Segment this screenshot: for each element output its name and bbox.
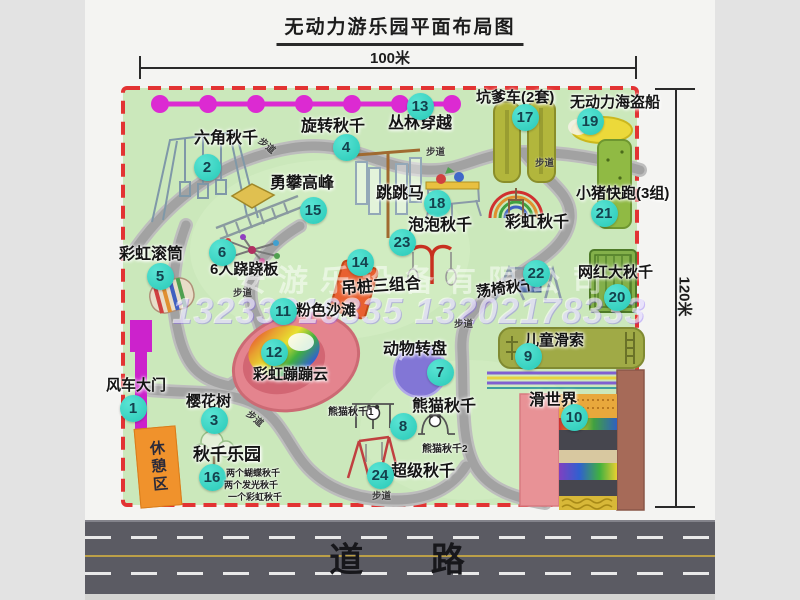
badge-rotate-swing: 4: [333, 134, 360, 161]
badge-hanging-post-combo: 14: [347, 249, 374, 276]
label-big-swing: 网红大秋千: [578, 265, 653, 281]
badge-hex-swing: 2: [194, 154, 221, 181]
road-label: 道 路: [85, 533, 715, 582]
walkway-label-5: 步道: [454, 316, 473, 330]
badge-rainbow-cloud: 12: [261, 339, 288, 366]
badge-swing-park: 16: [199, 464, 226, 491]
badge-bubble-swing: 23: [389, 229, 416, 256]
walkway-label-7: 步道: [372, 488, 391, 502]
badge-kids-zipline: 9: [515, 343, 542, 370]
sub-label-panda-swing-2: 熊猫秋千2: [422, 440, 468, 455]
label-rainbow-cloud: 彩虹蹦蹦云: [253, 367, 328, 383]
badge-windmill-gate: 1: [120, 395, 147, 422]
badge-pirate-ship: 19: [577, 108, 604, 135]
badge-seesaw-6p: 6: [209, 239, 236, 266]
label-pig-run: 小猪快跑(3组): [576, 186, 669, 202]
label-pink-beach: 粉色沙滩: [296, 303, 356, 319]
labels-layer: 风车大门1六角秋千2樱花树3旋转秋千4彩虹滚筒56人跷跷板6动物转盘7熊猫秋千8…: [0, 0, 800, 600]
sub-label-swing-park-note-3: 一个彩虹秋千: [228, 490, 282, 503]
sub-label-panda-swing-1: 熊猫秋千1: [328, 403, 374, 418]
label-hex-swing: 六角秋千: [194, 131, 258, 148]
badge-slide-world: 10: [561, 404, 588, 431]
label-bubble-swing: 泡泡秋千: [408, 218, 472, 235]
label-rainbow-swing: 彩虹秋千: [505, 215, 569, 232]
badge-panda-swing: 8: [390, 413, 417, 440]
badge-big-swing: 20: [604, 284, 631, 311]
label-super-swing: 超级秋千: [391, 464, 455, 481]
label-climb-peak: 勇攀高峰: [270, 176, 334, 193]
label-pirate-ship: 无动力海盗船: [570, 95, 660, 111]
label-hanging-post-combo: 吊桩三组合: [341, 276, 422, 298]
label-jump-horse: 跳跳马: [376, 186, 424, 203]
walkway-label-3: 步道: [535, 155, 554, 169]
walkway-label-2: 步道: [426, 144, 445, 158]
road: 道 路: [85, 520, 715, 596]
badge-animal-turntable: 7: [427, 359, 454, 386]
badge-jump-horse: 18: [424, 190, 451, 217]
label-windmill-gate: 风车大门: [106, 378, 166, 394]
walkway-label-1: 步道: [256, 134, 280, 157]
label-pit-car: 坑爹车(2套): [476, 90, 554, 106]
walkway-label-4: 步道: [233, 285, 252, 299]
road-shoulder: [85, 594, 715, 600]
badge-chair-swing: 22: [523, 260, 550, 287]
label-panda-swing: 熊猫秋千: [412, 399, 476, 416]
badge-cherry-tree: 3: [201, 407, 228, 434]
label-animal-turntable: 动物转盘: [383, 342, 447, 359]
badge-climb-peak: 15: [300, 197, 327, 224]
screenshot-stage: 无动力游乐园平面布局图 100米 120米 安游乐设备有限公司 13233816…: [0, 0, 800, 600]
badge-super-swing: 24: [367, 462, 394, 489]
badge-pit-car: 17: [512, 104, 539, 131]
walkway-label-6: 步道: [244, 407, 268, 430]
label-swing-park: 秋千乐园: [193, 446, 261, 464]
badge-jungle-crossing: 13: [407, 93, 434, 120]
badge-pink-beach: 11: [270, 298, 297, 325]
badge-pig-run: 21: [591, 200, 618, 227]
label-rotate-swing: 旋转秋千: [301, 119, 365, 136]
badge-rainbow-roller: 5: [147, 263, 174, 290]
label-rainbow-roller: 彩虹滚筒: [119, 247, 183, 264]
